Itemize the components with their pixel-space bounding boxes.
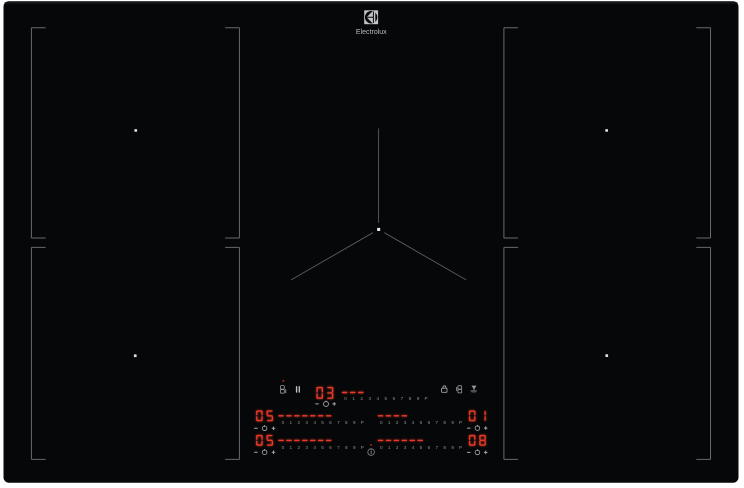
svg-text:1: 1: [290, 445, 293, 450]
svg-text:7: 7: [436, 420, 439, 425]
svg-text:2: 2: [297, 445, 300, 450]
svg-text:3: 3: [368, 396, 371, 401]
svg-text:2: 2: [396, 420, 399, 425]
svg-text:1: 1: [352, 396, 355, 401]
svg-text:5: 5: [321, 445, 324, 450]
svg-text:5: 5: [321, 420, 324, 425]
svg-text:8: 8: [409, 396, 412, 401]
svg-text:6: 6: [428, 420, 431, 425]
svg-text:0: 0: [282, 420, 285, 425]
svg-text:8: 8: [345, 420, 348, 425]
svg-text:7: 7: [337, 445, 340, 450]
svg-text:9: 9: [451, 420, 454, 425]
svg-text:4: 4: [412, 445, 415, 450]
svg-text:6: 6: [329, 445, 332, 450]
svg-text:P: P: [459, 445, 462, 450]
svg-text:P: P: [459, 420, 462, 425]
svg-text:9: 9: [353, 445, 356, 450]
svg-text:P: P: [425, 396, 428, 401]
svg-text:9: 9: [353, 420, 356, 425]
svg-text:3: 3: [404, 445, 407, 450]
svg-text:2: 2: [396, 445, 399, 450]
svg-text:5: 5: [385, 396, 388, 401]
svg-text:6: 6: [428, 445, 431, 450]
svg-text:4: 4: [313, 445, 316, 450]
svg-text:0: 0: [380, 445, 383, 450]
svg-text:4: 4: [376, 396, 379, 401]
svg-text:3: 3: [305, 445, 308, 450]
svg-text:0: 0: [344, 396, 347, 401]
svg-text:0: 0: [380, 420, 383, 425]
svg-text:Electrolux: Electrolux: [356, 29, 387, 36]
svg-text:1: 1: [290, 420, 293, 425]
svg-text:0: 0: [282, 445, 285, 450]
svg-text:P: P: [361, 445, 364, 450]
svg-text:4: 4: [313, 420, 316, 425]
svg-text:P: P: [361, 420, 364, 425]
svg-text:7: 7: [436, 445, 439, 450]
svg-text:8: 8: [443, 420, 446, 425]
svg-text:1: 1: [388, 420, 391, 425]
svg-text:3: 3: [404, 420, 407, 425]
svg-text:6: 6: [393, 396, 396, 401]
svg-text:3: 3: [305, 420, 308, 425]
svg-text:2: 2: [360, 396, 363, 401]
svg-text:8: 8: [443, 445, 446, 450]
svg-text:8: 8: [345, 445, 348, 450]
svg-text:7: 7: [337, 420, 340, 425]
svg-text:4: 4: [412, 420, 415, 425]
svg-text:5: 5: [420, 445, 423, 450]
svg-text:5: 5: [420, 420, 423, 425]
svg-text:9: 9: [417, 396, 420, 401]
svg-text:7: 7: [401, 396, 404, 401]
svg-text:6: 6: [329, 420, 332, 425]
svg-text:1: 1: [388, 445, 391, 450]
svg-text:2: 2: [297, 420, 300, 425]
svg-text:9: 9: [451, 445, 454, 450]
